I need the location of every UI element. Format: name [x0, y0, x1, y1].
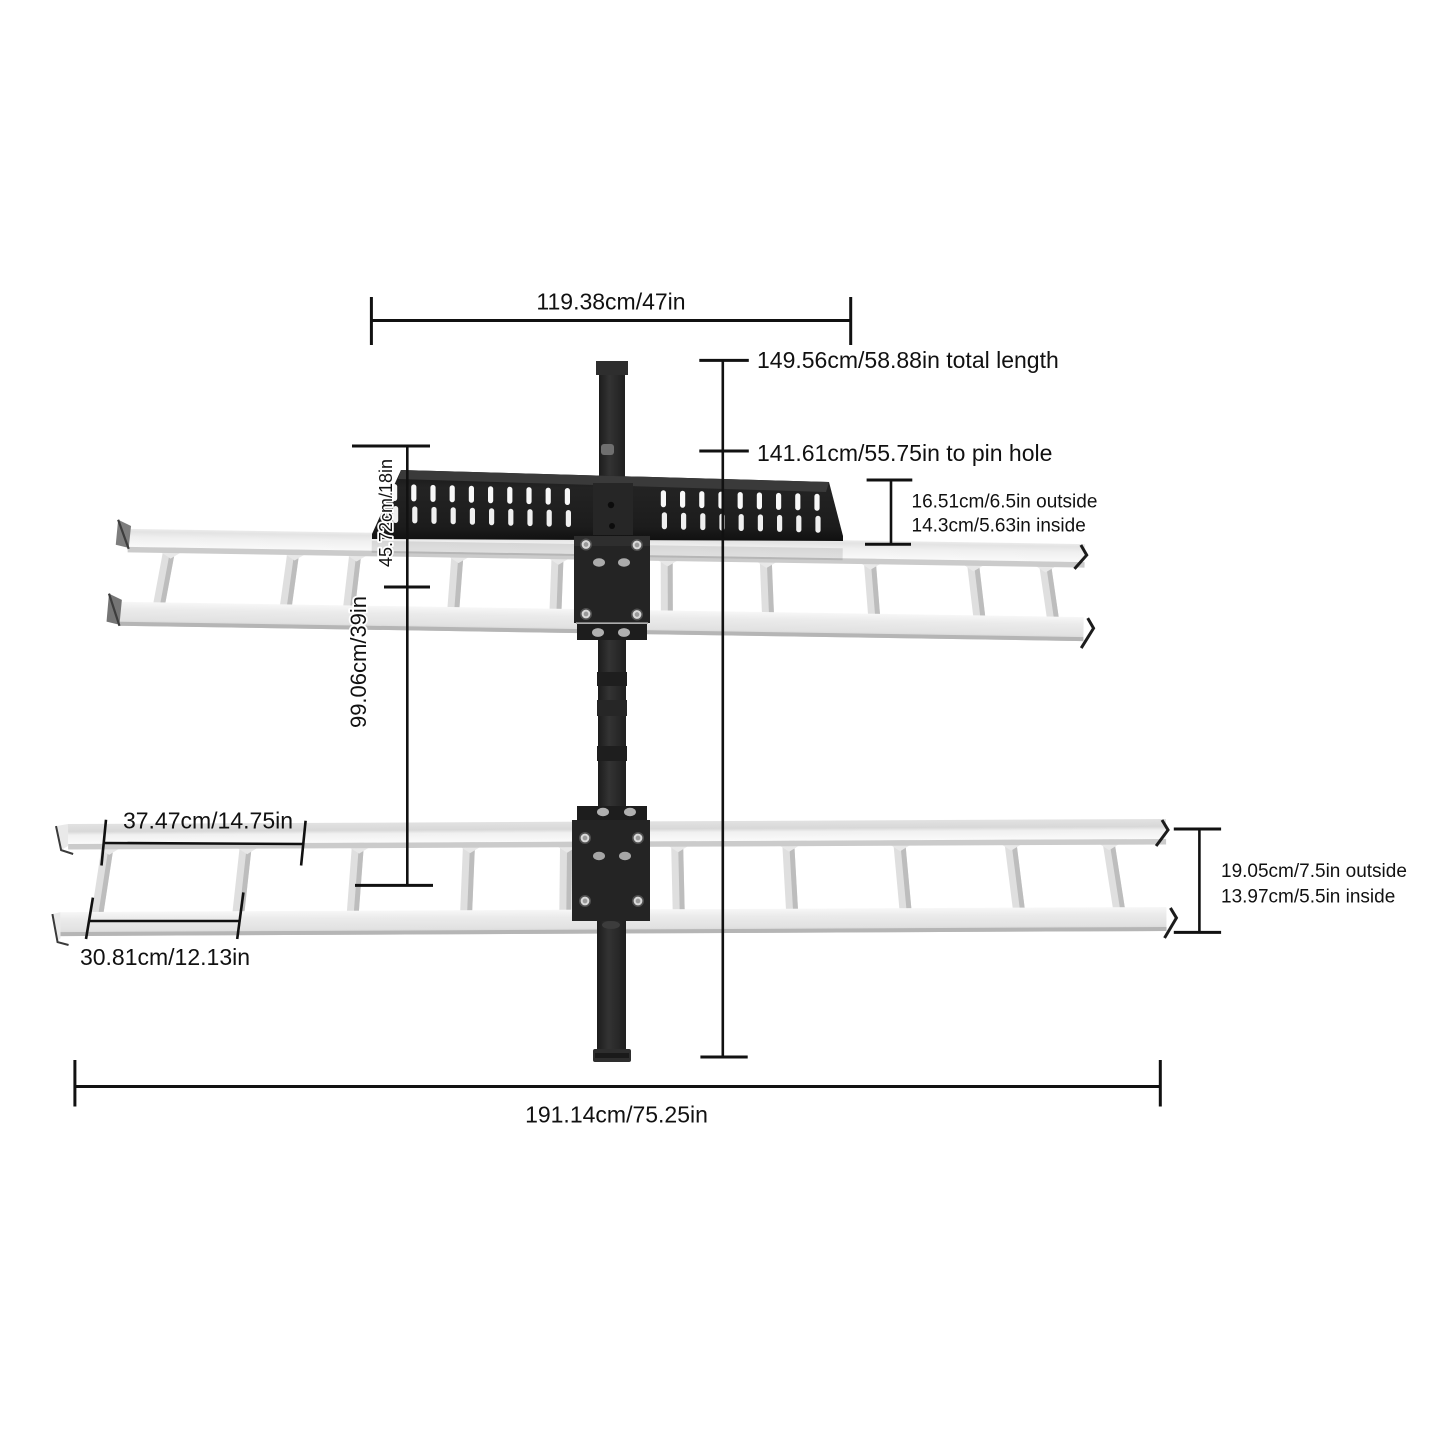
svg-text:99.06cm/39in: 99.06cm/39in	[346, 596, 371, 728]
svg-text:16.51cm/6.5in outside: 16.51cm/6.5in outside	[912, 492, 1098, 513]
svg-text:191.14cm/75.25in: 191.14cm/75.25in	[525, 1102, 708, 1128]
svg-text:13.97cm/5.5in inside: 13.97cm/5.5in inside	[1221, 887, 1395, 908]
svg-text:37.47cm/14.75in: 37.47cm/14.75in	[123, 808, 293, 834]
svg-text:141.61cm/55.75in to pin hole: 141.61cm/55.75in to pin hole	[757, 440, 1052, 466]
svg-text:149.56cm/58.88in total length: 149.56cm/58.88in total length	[757, 347, 1059, 373]
svg-text:14.3cm/5.63in inside: 14.3cm/5.63in inside	[912, 516, 1086, 537]
svg-text:19.05cm/7.5in outside: 19.05cm/7.5in outside	[1221, 861, 1407, 882]
svg-text:119.38cm/47in: 119.38cm/47in	[536, 289, 685, 315]
svg-text:45.72cm/18in: 45.72cm/18in	[376, 459, 396, 567]
svg-text:30.81cm/12.13in: 30.81cm/12.13in	[80, 944, 250, 970]
